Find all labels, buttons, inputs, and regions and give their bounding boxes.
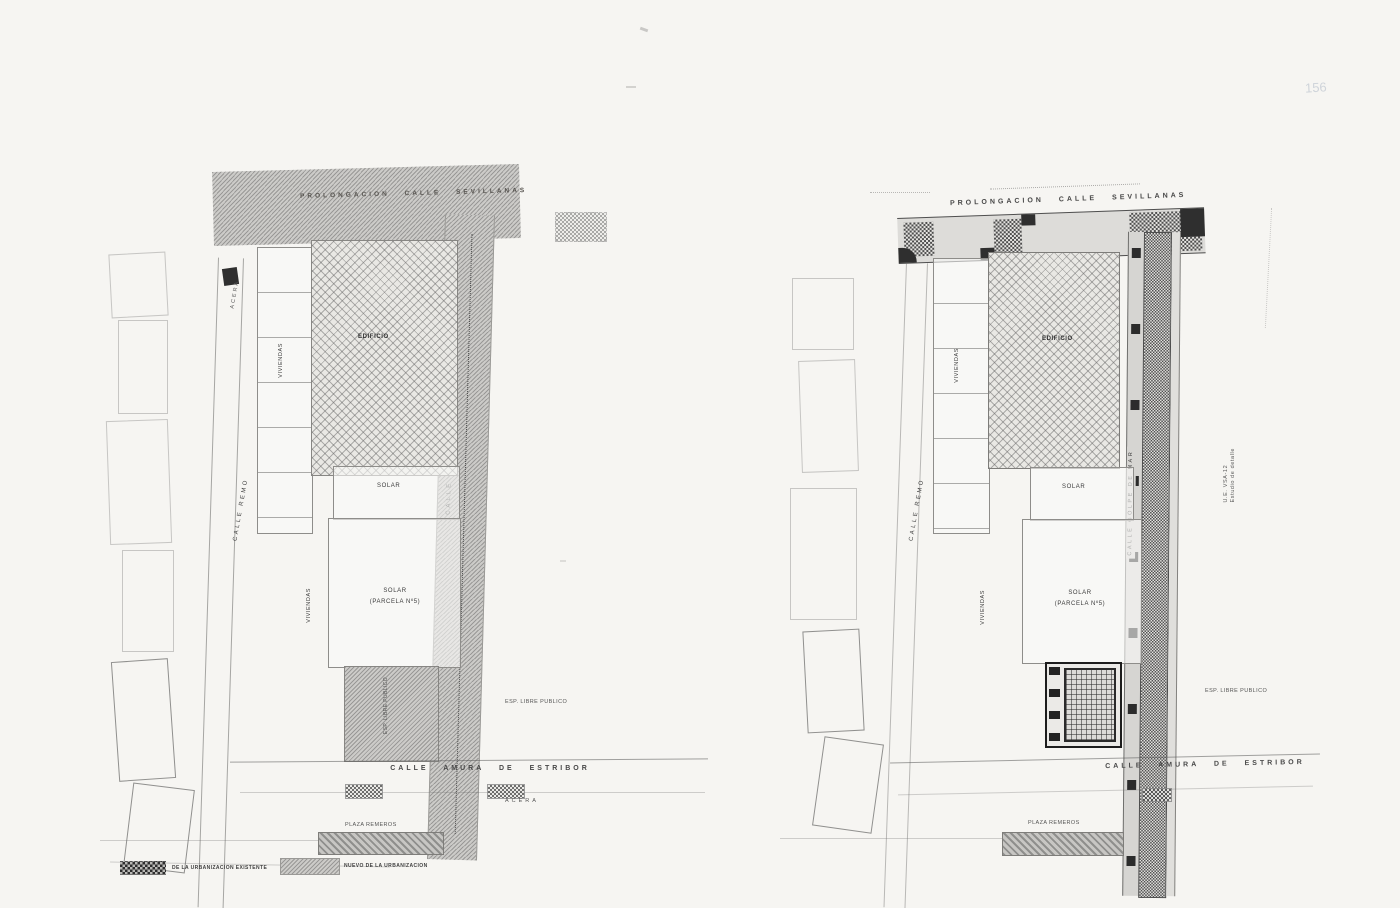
parcel-label-solar-5-line2: (PARCELA Nº5) — [1030, 601, 1130, 609]
parcel-edificio — [311, 240, 458, 476]
scanned-plan-page: { "page": { "corner_mark": "156" }, "lef… — [0, 0, 1400, 874]
cadastral-linework — [798, 359, 859, 473]
paving-patch — [555, 212, 607, 242]
parcel-label-viviendas-bottom: VIVIENDAS — [980, 590, 987, 625]
esp-libre-annotation: ESP. LIBRE PUBLICO — [1205, 688, 1267, 695]
parcel-label-viviendas-bottom: VIVIENDAS — [306, 588, 313, 623]
corner-block — [1021, 214, 1035, 225]
column-row — [1049, 667, 1060, 741]
cadastral-linework — [118, 320, 168, 414]
cadastral-linework — [122, 550, 174, 652]
paving-patch — [487, 784, 525, 799]
corner-block — [1180, 208, 1205, 237]
street-edge-line — [240, 792, 705, 793]
cadastral-linework — [106, 419, 172, 545]
street-label-acera-bottom: ACERA — [505, 798, 539, 805]
margin-note-line2: Estudio de detalle — [1230, 448, 1237, 503]
scan-speck — [626, 86, 636, 88]
parcel-label-solar-5-line1: SOLAR — [350, 588, 440, 596]
legend-label-existing: DE LA URBANIZACION EXISTENTE — [172, 865, 267, 871]
parcel-label-viviendas-top: VIVIENDAS — [278, 343, 285, 378]
street-label-prolongacion: PROLONGACION CALLE SEVILLANAS — [950, 192, 1187, 209]
paving-patch — [1142, 788, 1172, 802]
plaza-band — [318, 832, 444, 855]
parcel-label-solar-5: SOLAR (PARCELA Nº5) — [350, 588, 440, 606]
esp-libre-annotation: ESP. LIBRE PUBLICO — [505, 699, 567, 706]
parcel-label-edificio: EDIFICIO — [358, 334, 389, 342]
plaza-label: PLAZA REMEROS — [345, 822, 397, 829]
parcel-label-solar-5-line1: SOLAR — [1030, 590, 1130, 598]
cadastral-linework — [790, 488, 857, 620]
corner-page-mark: 156 — [1305, 79, 1328, 96]
paving-patch — [345, 784, 383, 799]
cadastral-linework — [812, 736, 884, 833]
cadastral-linework — [792, 278, 854, 350]
parcel-label-edificio: EDIFICIO — [1042, 336, 1073, 344]
street-edge-line — [898, 786, 1313, 796]
legend: DE LA URBANIZACION EXISTENTE NUEVO DE LA… — [118, 858, 678, 874]
scan-speck — [640, 27, 649, 33]
pergola-grid — [1064, 668, 1116, 742]
street-label-calle-amura: CALLE AMURA DE ESTRIBOR — [1080, 758, 1330, 772]
parcel-label-solar: SOLAR — [1062, 484, 1085, 492]
parcel-viviendas-strip — [257, 247, 313, 534]
plaza-label: PLAZA REMEROS — [1028, 820, 1080, 827]
scan-squiggle — [1265, 208, 1272, 328]
left-site-plan: PROLONGACION CALLE SEVILLANAS CALLE GOLP… — [100, 148, 620, 874]
parcel-label-solar: SOLAR — [377, 483, 400, 491]
right-site-plan: PROLONGACION CALLE SEVILLANAS CALLE GOLP… — [780, 148, 1360, 874]
margin-note-line1: U.E. VSA-12 — [1223, 448, 1230, 503]
street-calle-remo — [883, 263, 927, 908]
cadastral-linework — [111, 658, 176, 782]
parcel-solar — [1030, 467, 1134, 521]
parcel-viviendas-strip — [933, 258, 990, 534]
street-calle-remo — [198, 258, 244, 908]
legend-swatch-new — [280, 858, 340, 875]
parcel-esp-libre: ESP. LIBRE PUBLICO — [344, 666, 439, 762]
parcel-label-solar-5: SOLAR (PARCELA Nº5) — [1030, 590, 1130, 608]
plaza-band — [1002, 832, 1124, 856]
scan-squiggle — [870, 192, 930, 193]
parcel-edificio — [988, 252, 1120, 469]
parcel-label-solar-5-line2: (PARCELA Nº5) — [350, 599, 440, 607]
cadastral-linework — [108, 252, 168, 319]
legend-label-new: NUEVO DE LA URBANIZACION — [344, 863, 428, 869]
street-label-calle-amura: CALLE AMURA DE ESTRIBOR — [350, 765, 630, 774]
cadastral-linework — [802, 629, 864, 734]
parcel-label-viviendas-top: VIVIENDAS — [954, 348, 961, 383]
legend-swatch-existing — [120, 861, 166, 875]
crosswalk — [993, 219, 1022, 254]
scan-speck — [560, 560, 566, 562]
parcel-solar — [333, 466, 460, 520]
public-space-plan — [1045, 662, 1122, 748]
parcel-label-esp-libre: ESP. LIBRE PUBLICO — [383, 677, 389, 734]
scan-squiggle — [990, 183, 1140, 189]
margin-note: U.E. VSA-12 Estudio de detalle — [1223, 448, 1237, 503]
